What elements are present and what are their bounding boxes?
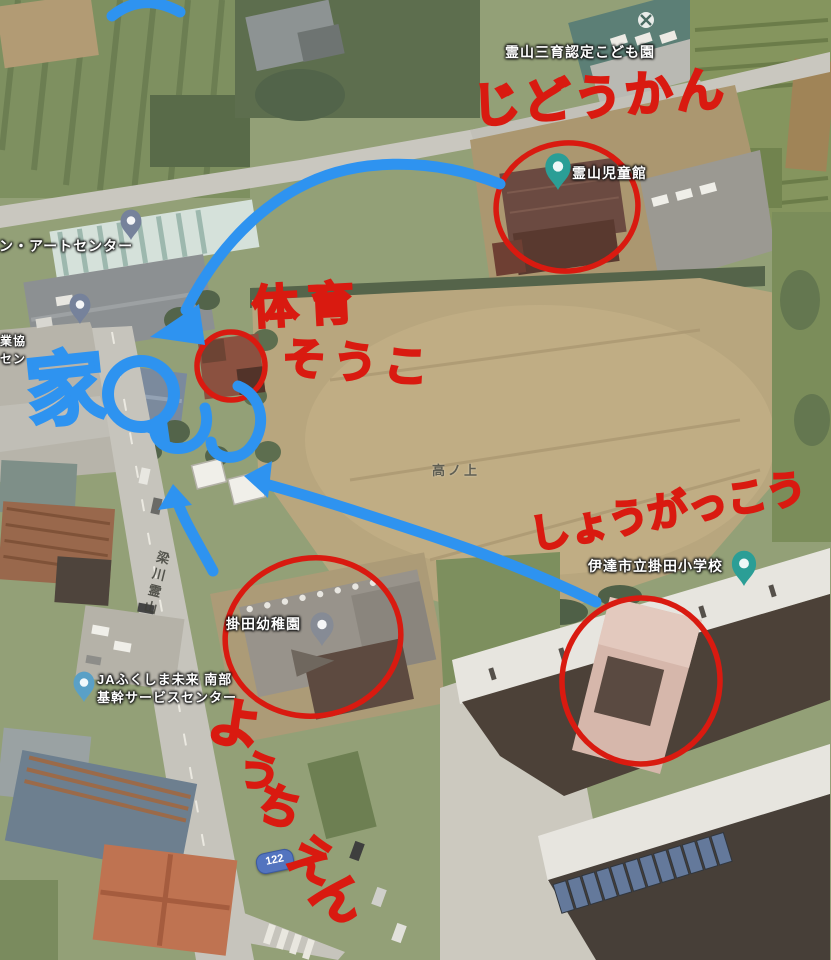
satellite-map[interactable]: 霊山三育認定こども園 霊山児童館 サン・アートセンター 業協 セン 高ノ上 伊達… [0,0,831,960]
label-kindergarten[interactable]: 掛田幼稚園 [226,614,301,634]
label-ja-line1[interactable]: JAふくしま未来 南部 [97,669,232,688]
arrowhead-up [158,484,192,510]
red-circle-gym-storage [197,332,265,400]
annotation-text-gym-line1: 体育 [251,279,365,331]
red-ink-circles [197,136,726,769]
label-field-takanoue[interactable]: 高ノ上 [432,460,480,479]
annotation-text-house: 家 [22,346,110,434]
label-kodomoen[interactable]: 霊山三育認定こども園 [505,42,655,62]
blue-scribble-top [112,3,180,16]
arrowhead-to-house [150,304,205,345]
label-art-center[interactable]: サン・アートセンター [0,236,133,256]
hand-annotations-layer [0,0,831,960]
label-elementary-school[interactable]: 伊達市立掛田小学校 [588,556,723,576]
annotation-text-gym-line2: そうこ [281,337,437,392]
red-circle-jidokan [490,136,645,278]
arrowhead-to-tents [244,461,272,498]
blue-arrow-up-stem [176,497,213,571]
red-circle-school [556,593,725,770]
label-jidokan[interactable]: 霊山児童館 [572,163,647,183]
